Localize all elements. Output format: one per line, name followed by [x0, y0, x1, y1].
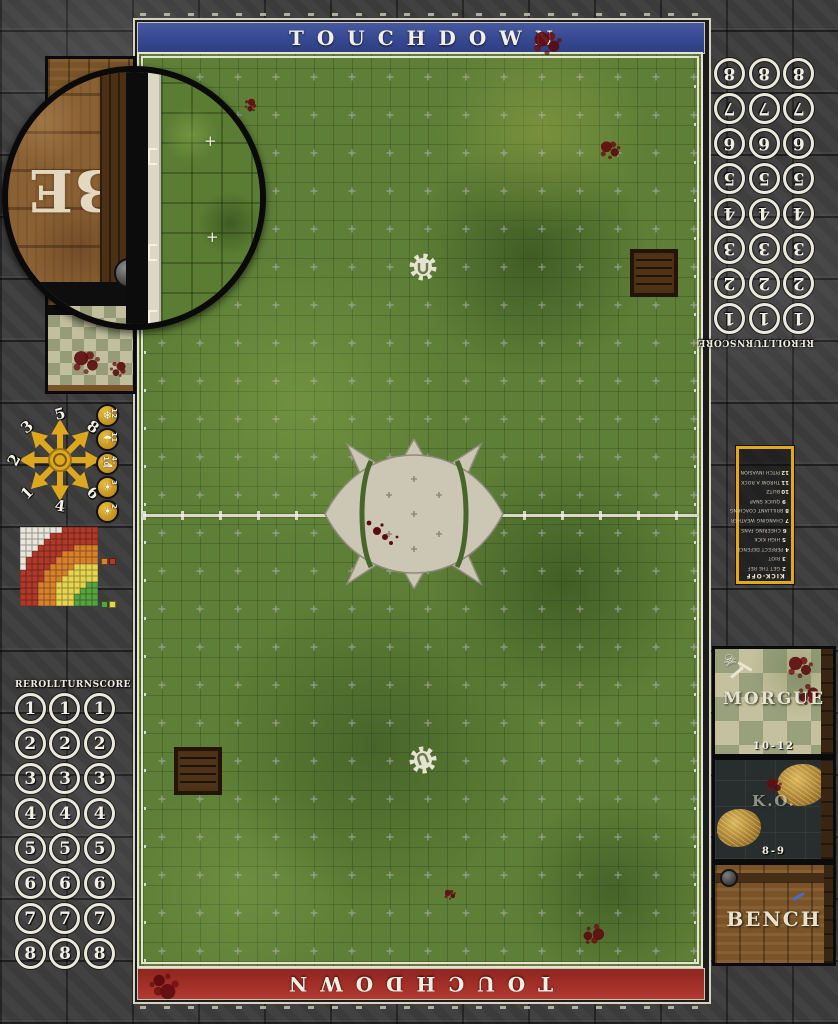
spiked-ball-emblem	[319, 439, 509, 589]
tracker-number-circle: 6	[714, 128, 745, 159]
touchdown-label-bottom: TOUCHDOWN	[276, 972, 566, 996]
kickoff-event-name: THROW A ROCK	[741, 479, 780, 484]
kickoff-table-row: 11THROW A ROCK	[739, 475, 791, 485]
pass-range-chart	[20, 527, 98, 606]
tracker-number-circle: 5	[749, 163, 780, 194]
tracker-number-circle: 6	[783, 128, 814, 159]
tracker-number-circle: 3	[15, 763, 46, 794]
tracker-number-circle: 6	[84, 868, 115, 899]
tracker-number-circle: 4	[15, 798, 46, 829]
tracker-number-circle: 7	[84, 903, 115, 934]
tracker-number-circle: 3	[84, 763, 115, 794]
kickoff-event-name: CHEERING FANS	[741, 527, 781, 532]
blood-splatter	[109, 360, 129, 378]
kickoff-table-row: 4PERFECT DEFENCE	[739, 542, 791, 552]
magnified-sideline-bracket	[148, 244, 157, 261]
pass-range-legend-bottom	[101, 601, 116, 608]
tracker-number-circle: 1	[714, 303, 745, 334]
magnified-pitch-grass	[161, 72, 260, 324]
reroll-turn-score-tracker-right: REROLLTURNSCORE111222333444555666777888	[712, 58, 816, 347]
kickoff-roll-value: 6	[783, 527, 789, 533]
blood-bowl-pitch-mat: { "banners": { "top_label": "TOUCHDOWN",…	[0, 0, 838, 1024]
tracker-number-circle: 4	[783, 198, 814, 229]
morgue-panel: ☠ MORGUE 10-12	[712, 646, 836, 757]
weather-item: ☁4-10	[94, 452, 130, 474]
tracker-header-word: REROLL	[769, 337, 814, 347]
weather-roll-value: 4-10	[102, 456, 118, 468]
tracker-header-word: TURN	[736, 337, 768, 347]
ko-panel: K.O. 8-9	[712, 757, 836, 862]
weather-roll-value: 12	[110, 408, 118, 419]
weather-item: ☀2	[94, 500, 130, 522]
kickoff-roll-value: 4	[785, 546, 789, 552]
tracker-number-circle: 5	[783, 163, 814, 194]
ko-label: K.O.	[715, 792, 833, 810]
kickoff-event-name: CHANGING WEATHER	[731, 517, 783, 522]
morgue-label: MORGUE	[715, 689, 833, 709]
magnified-sideline	[148, 72, 161, 324]
tracker-number-circle: 8	[15, 938, 46, 969]
kickoff-event-name: GET THE REF	[748, 565, 780, 570]
bench-label: BENCH	[715, 907, 833, 931]
weather-roll-value: 3	[110, 480, 118, 485]
tracker-number-circle: 7	[49, 903, 80, 934]
tracker-number-circle: 6	[49, 868, 80, 899]
blood-splatter	[530, 28, 564, 56]
kickoff-roll-value: 5	[782, 536, 789, 542]
weather-track: ❄12☂11☁4-10☀3☀2	[94, 404, 130, 524]
tracker-number-circle: 1	[783, 303, 814, 334]
tracker-number-circle: 3	[714, 233, 745, 264]
tracker-header-word: TURN	[60, 680, 92, 690]
legend-swatch	[101, 558, 108, 565]
tracker-header-word: REROLL	[15, 680, 60, 690]
kickoff-table-row: 8BRILLIANT COACHING	[739, 504, 791, 514]
tracker-header-word: SCORE	[698, 337, 736, 347]
blood-splatter	[70, 347, 102, 375]
kickoff-table-row: 3RIOT	[739, 552, 791, 562]
reroll-turn-score-tracker-left: REROLLTURNSCORE111222333444555666777888	[13, 680, 117, 969]
kickoff-table-row: 10BLITZ	[739, 485, 791, 495]
tracker-number-circle: 4	[749, 198, 780, 229]
morgue-dice-range: 10-12	[715, 741, 833, 752]
tracker-number-circle: 8	[749, 58, 780, 89]
right-dugout: ☠ MORGUE 10-12 K.O. 8-9 BENCH	[712, 646, 836, 966]
legend-swatch	[109, 558, 116, 565]
tracker-number-circle: 2	[49, 728, 80, 759]
tracker-number-circle: 5	[15, 833, 46, 864]
kickoff-table-row: 7CHANGING WEATHER	[739, 513, 791, 523]
trapdoor-top	[630, 249, 678, 297]
tracker-number-circle: 2	[749, 268, 780, 299]
kickoff-table-row: 5HIGH KICK	[739, 533, 791, 543]
pass-range-legend-top	[101, 558, 116, 565]
tracker-number-circle: 8	[49, 938, 80, 969]
kickoff-roll-value: 2	[782, 565, 789, 571]
magnified-sideline-bracket	[148, 148, 157, 165]
weather-item: ☀3	[94, 476, 130, 498]
kickoff-table-row: 6CHEERING FANS	[739, 523, 791, 533]
kickoff-roll-value: 11	[782, 479, 789, 485]
kickoff-roll-value: 9	[782, 498, 789, 504]
bench-bolt	[720, 869, 738, 887]
weather-item: ❄12	[94, 404, 130, 426]
tracker-number-circle: 5	[49, 833, 80, 864]
blood-splatter	[443, 888, 457, 900]
tracker-number-circle: 1	[15, 693, 46, 724]
kickoff-table-row: 12PITCH INVASION	[739, 465, 791, 475]
tracker-grid: 111222333444555666777888	[13, 693, 117, 969]
weather-roll-value: 11	[110, 432, 118, 443]
kickoff-event-name: PITCH INVASION	[740, 469, 780, 474]
tracker-grid: 111222333444555666777888	[712, 58, 816, 334]
tracker-number-circle: 5	[84, 833, 115, 864]
kickoff-event-name: RIOT	[768, 555, 780, 560]
kickoff-event-name: HIGH KICK	[754, 536, 780, 541]
kickoff-table-row: 9QUICK SNAP	[739, 494, 791, 504]
tracker-number-circle: 3	[49, 763, 80, 794]
kickoff-roll-value: 8	[785, 507, 789, 513]
tracker-header: REROLLTURNSCORE	[712, 337, 816, 347]
tracker-number-circle: 2	[84, 728, 115, 759]
weather-item: ☂11	[94, 428, 130, 450]
kickoff-event-name: QUICK SNAP	[750, 498, 780, 503]
quill-icon	[792, 892, 805, 901]
magnified-grid-cross: +	[206, 228, 219, 246]
weather-roll-value: 2	[110, 504, 118, 509]
tracker-number-circle: 5	[714, 163, 745, 194]
magnified-sideline-bracket	[148, 310, 157, 327]
tracker-number-circle: 8	[783, 58, 814, 89]
tracker-number-circle: 7	[783, 93, 814, 124]
legend-swatch	[109, 601, 116, 608]
tracker-number-circle: 3	[783, 233, 814, 264]
tracker-number-circle: 6	[749, 128, 780, 159]
tracker-number-circle: 6	[15, 868, 46, 899]
tracker-number-circle: 2	[783, 268, 814, 299]
tracker-number-circle: 4	[714, 198, 745, 229]
tracker-number-circle: 3	[749, 233, 780, 264]
tracker-header-word: SCORE	[93, 680, 131, 690]
magnified-dugout-frame	[126, 72, 148, 324]
legend-swatch	[101, 601, 108, 608]
kickoff-roll-value: 3	[782, 555, 789, 561]
trapdoor-bottom	[174, 747, 222, 795]
tracker-number-circle: 2	[714, 268, 745, 299]
tracker-number-circle: 1	[49, 693, 80, 724]
kickoff-table-panel: KICK-OFF 2GET THE REF3RIOT4PERFECT DEFEN…	[736, 446, 794, 584]
tracker-number-circle: 1	[749, 303, 780, 334]
tracker-number-circle: 1	[84, 693, 115, 724]
magnifier-inset: BE + +	[2, 66, 266, 330]
sideline-ticks-right	[694, 58, 696, 962]
endzone-banner-bottom: TOUCHDOWN	[137, 968, 705, 1000]
kickoff-event-name: BLITZ	[766, 488, 780, 493]
touchdown-label-top: TOUCHDOWN	[276, 26, 566, 50]
tracker-number-circle: 2	[15, 728, 46, 759]
kickoff-event-name: BRILLIANT COACHING	[730, 507, 783, 512]
bench-panel: BENCH	[712, 862, 836, 966]
tracker-number-circle: 7	[749, 93, 780, 124]
ko-dice-range: 8-9	[715, 846, 833, 857]
blood-splatter	[785, 653, 815, 679]
magnified-frame-bar	[8, 282, 126, 306]
tracker-number-circle: 4	[84, 798, 115, 829]
blood-splatter	[598, 138, 622, 160]
tracker-header: REROLLTURNSCORE	[13, 680, 117, 690]
stitch-line-top	[140, 13, 706, 16]
endzone-banner-top: TOUCHDOWN	[137, 22, 705, 54]
kickoff-table-title: KICK-OFF	[739, 572, 791, 579]
kickoff-roll-value: 7	[785, 517, 789, 523]
kickoff-roll-value: 12	[782, 469, 789, 475]
gear-skull-icon-top	[409, 253, 437, 281]
magnified-morgue-tiles	[8, 306, 126, 324]
magnified-grid-cross: +	[204, 132, 217, 150]
kickoff-event-name: PERFECT DEFENCE	[737, 546, 783, 551]
kickoff-roll-value: 10	[782, 488, 789, 494]
tracker-number-circle: 7	[15, 903, 46, 934]
tracker-number-circle: 8	[714, 58, 745, 89]
hay-bale	[717, 809, 761, 847]
pass-range-cell	[92, 600, 98, 606]
tracker-number-circle: 4	[49, 798, 80, 829]
stitch-line-bottom	[140, 1006, 706, 1009]
skull-icon: ☠	[720, 649, 739, 671]
scatter-direction-number: 4	[52, 496, 68, 516]
tracker-number-circle: 7	[714, 93, 745, 124]
kickoff-table-row: 2GET THE REF	[739, 561, 791, 571]
tracker-number-circle: 8	[84, 938, 115, 969]
